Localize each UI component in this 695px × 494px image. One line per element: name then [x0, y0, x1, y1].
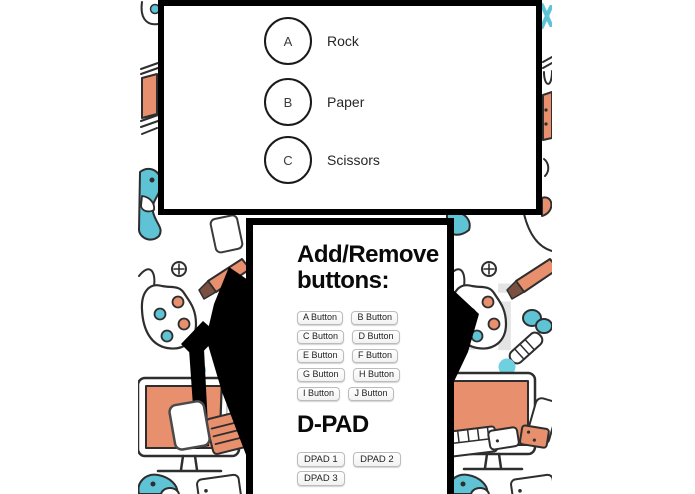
b-button[interactable]: B Button: [351, 311, 398, 325]
add-remove-heading: Add/Remove buttons:: [297, 242, 443, 294]
dpad-1-button[interactable]: DPAD 1: [297, 452, 345, 467]
card-icon: [196, 474, 241, 494]
gamepad-button-a-label: Rock: [327, 33, 359, 49]
book-spine-icon: [141, 63, 158, 134]
button-row: E Button F Button: [297, 345, 443, 363]
gamepad-row-rock: A Rock: [264, 17, 359, 65]
scissors-x-icon: [542, 5, 551, 27]
c-button[interactable]: C Button: [297, 330, 344, 344]
button-row: A Button B Button: [297, 307, 443, 325]
app-window: ri: [0, 0, 695, 494]
dpad-2-button[interactable]: DPAD 2: [353, 452, 401, 467]
game-controller-icon: [139, 262, 196, 349]
button-row: G Button H Button: [297, 364, 443, 382]
h-button[interactable]: H Button: [353, 368, 400, 382]
j-button[interactable]: J Button: [348, 387, 393, 401]
fish-icon: [448, 475, 489, 494]
card-icon: [510, 474, 555, 494]
card-icon: [488, 427, 520, 450]
a-button[interactable]: A Button: [297, 311, 343, 325]
gamepad-button-b[interactable]: B: [264, 78, 312, 126]
e-button[interactable]: E Button: [297, 349, 344, 363]
dpad-row: DPAD 3: [297, 468, 443, 486]
f-button[interactable]: F Button: [352, 349, 398, 363]
fish-icon: [138, 475, 179, 494]
book-spine-icon: [542, 57, 552, 216]
cable-line: [524, 214, 552, 251]
button-row: I Button J Button: [297, 383, 443, 401]
gamepad-button-a[interactable]: A: [264, 17, 312, 65]
gamepad-button-b-label: Paper: [327, 94, 364, 110]
gamepad-display-panel: A Rock B Paper C Scissors: [158, 0, 542, 215]
dpad-heading: D-PAD: [297, 412, 443, 438]
hook-doodle-icon: [142, 2, 160, 24]
g-button[interactable]: G Button: [297, 368, 345, 382]
gamepad-row-paper: B Paper: [264, 78, 364, 126]
dpad-row: DPAD 1 DPAD 2: [297, 449, 443, 467]
dpad-3-button[interactable]: DPAD 3: [297, 471, 345, 486]
i-button[interactable]: I Button: [297, 387, 340, 401]
controls-panel: Add/Remove buttons: A Button B Button C …: [246, 218, 454, 494]
card-icon: [210, 214, 243, 253]
d-button[interactable]: D Button: [352, 330, 399, 344]
gamepad-row-scissors: C Scissors: [264, 136, 380, 184]
gamepad-button-c[interactable]: C: [264, 136, 312, 184]
chip-icon: [520, 425, 550, 448]
button-row: C Button D Button: [297, 326, 443, 344]
gamepad-button-c-label: Scissors: [327, 152, 380, 168]
